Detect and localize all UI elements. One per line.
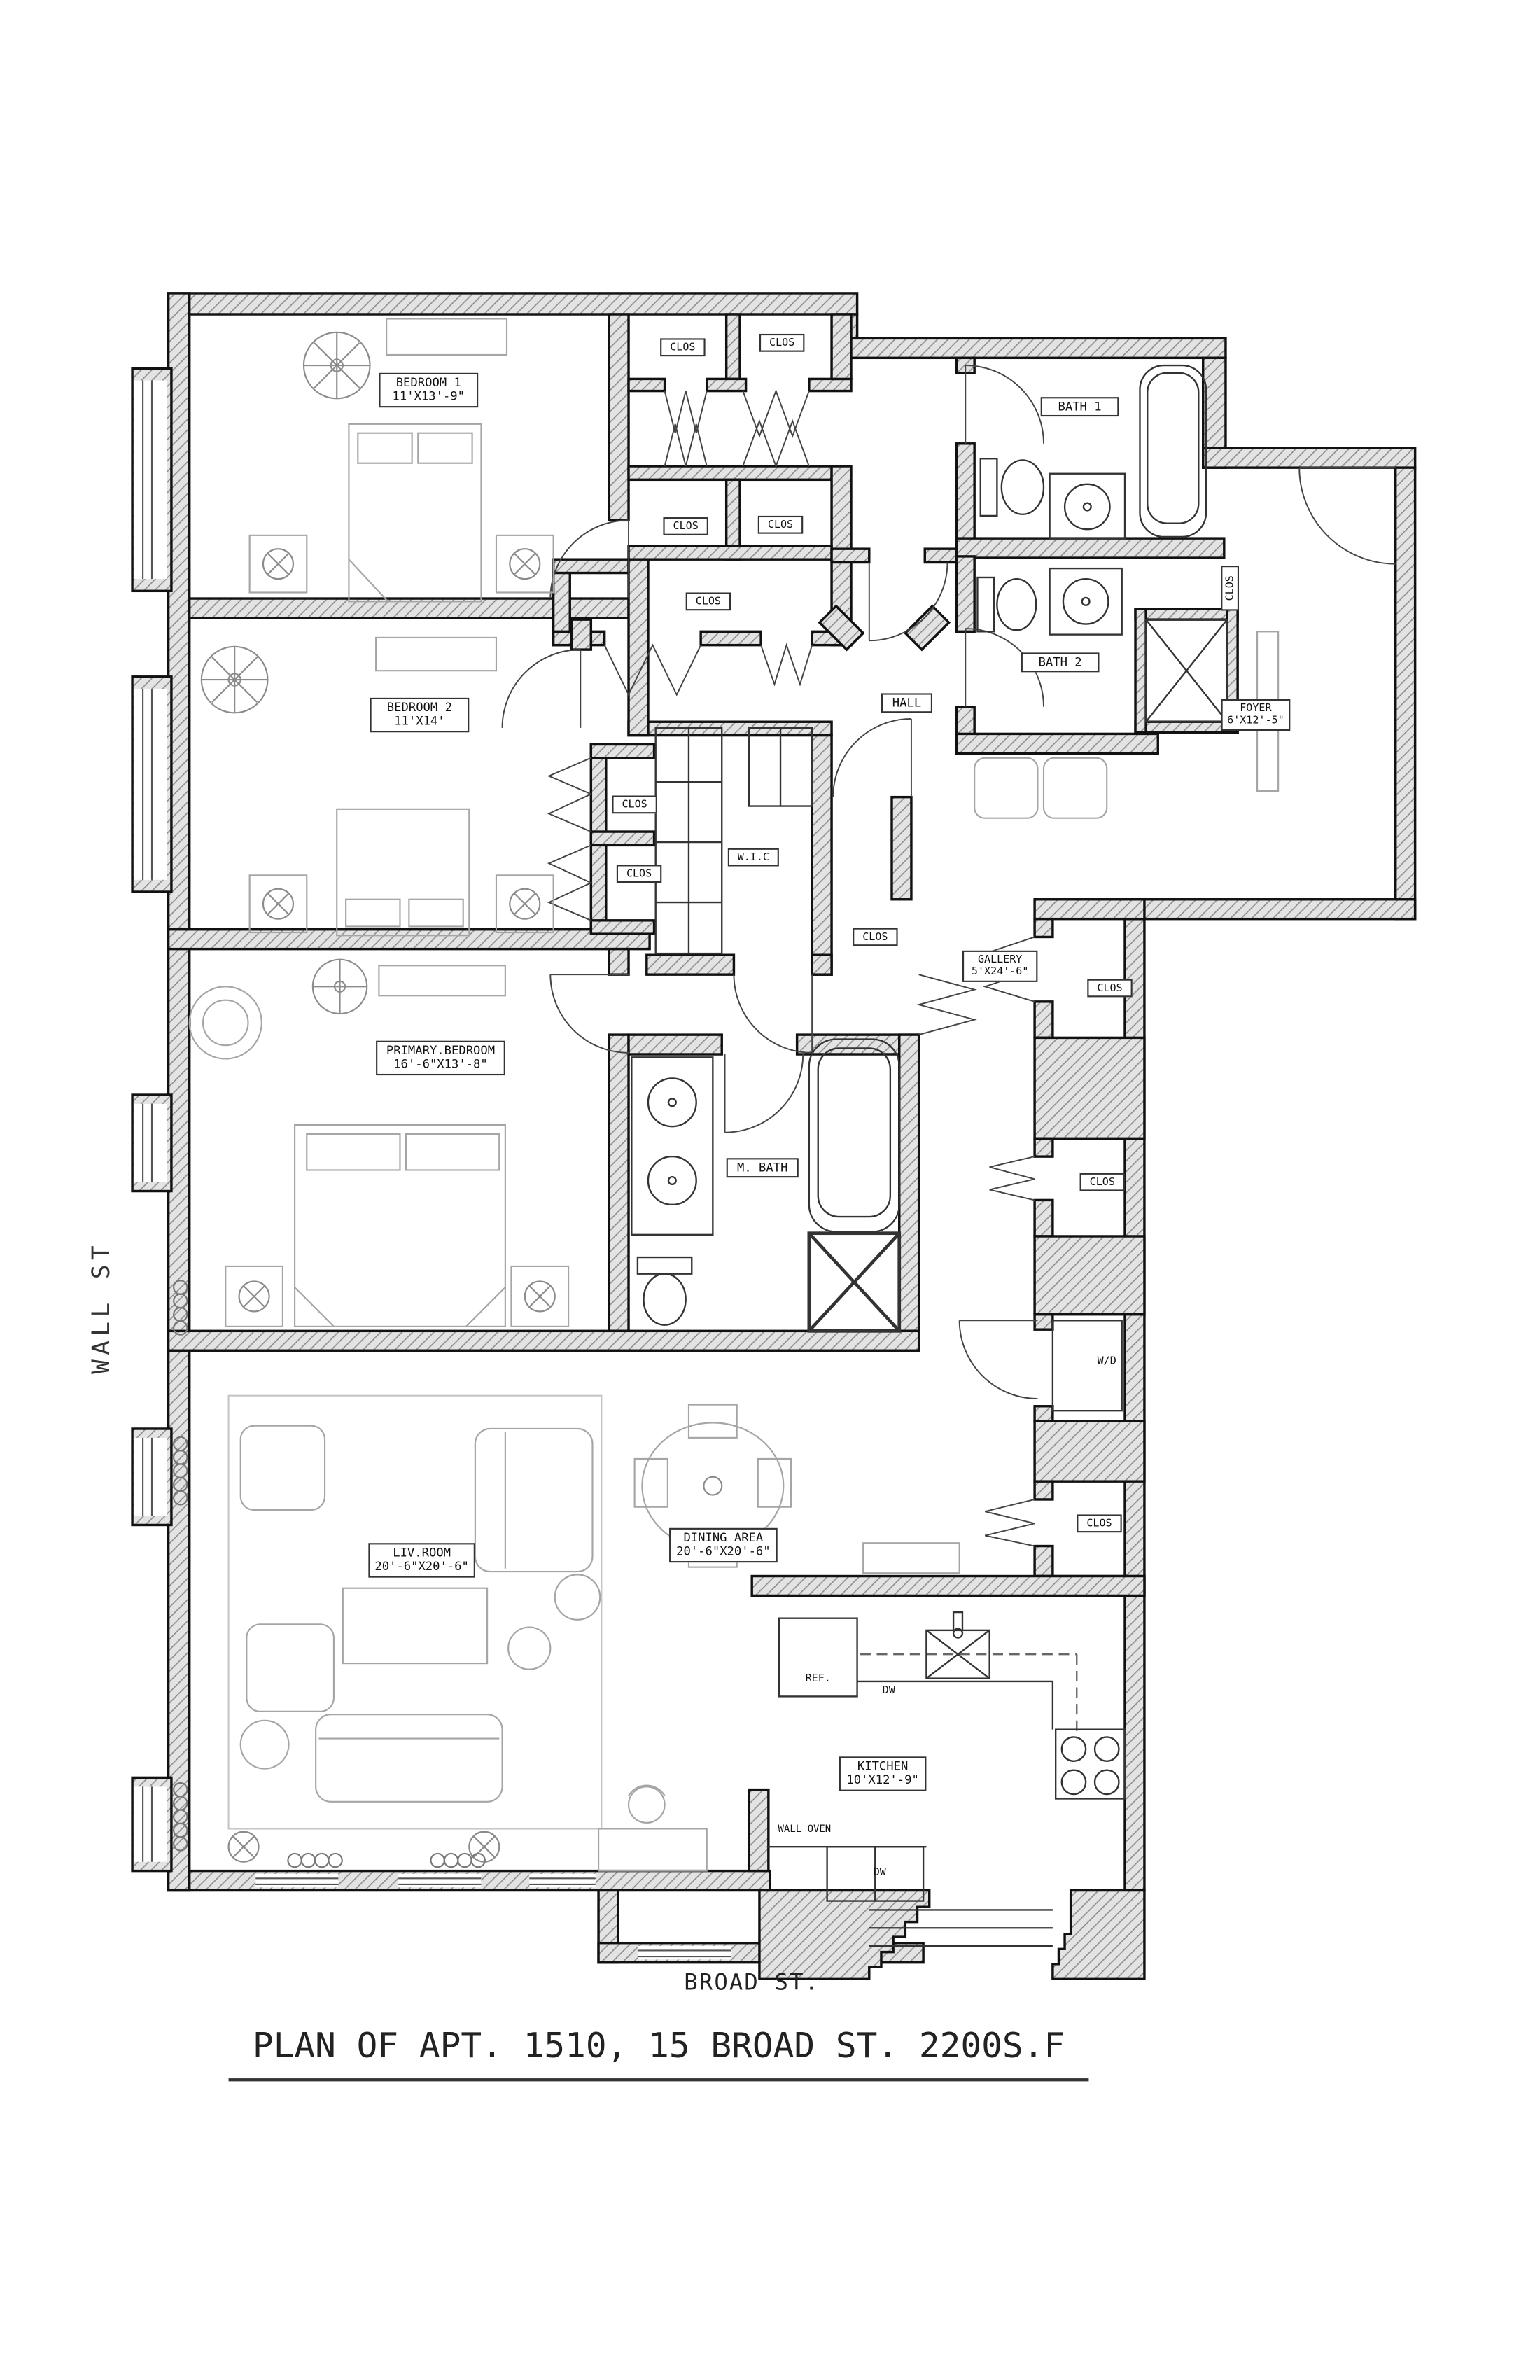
plant-2 [508,1627,550,1669]
dresser-bedroom1 [386,318,507,355]
closet-label-8: CLOS [853,928,897,946]
bed-bedroom1 [349,424,481,602]
stove-icon [1056,1730,1125,1799]
bottom-window-3 [529,1874,596,1887]
bedroom1-name: BEDROOM 1 [382,376,475,390]
dining-area-dims: 20'-6"X20'-6" [672,1545,774,1559]
bottom-window-2 [398,1874,481,1887]
ceiling-fan-primary-icon [313,960,367,1014]
washer-dryer-label: W/D [1091,1355,1123,1368]
closet-label-3: CLOS [663,517,708,535]
bathtub-bath1-icon [1140,365,1206,537]
sofa-living-right [475,1429,593,1571]
dining-area-name: DINING AREA [672,1531,774,1545]
dresser-bedroom2 [376,638,496,671]
kitchen-name: KITCHEN [842,1760,923,1774]
gallery-dims: 5'X24'-6" [965,966,1035,979]
vanity-mbath-icon [631,1057,713,1235]
desk-and-stool [598,1786,707,1871]
hall-label: HALL [881,693,932,713]
ceiling-fan-bedroom1-icon [304,332,370,399]
closet-label-9: CLOS [1087,979,1132,997]
gallery-name: GALLERY [965,953,1035,966]
ceiling-fan-bedroom2-icon [202,647,268,713]
bottom-window-1 [255,1874,338,1887]
bedroom1-dims: 11'X13'-9" [382,390,475,404]
dishwasher-top-label: DW [872,1684,905,1697]
wardrobe-wic-icon [656,728,812,953]
kitchen-dims: 10'X12'-9" [842,1774,923,1788]
foyer-label: FOYER 6'X12'-5" [1221,699,1291,730]
bathtub-mbath-icon [809,1039,899,1232]
sideboard [863,1543,959,1573]
closet-label-2: CLOS [759,334,804,352]
bay-window-primary [134,1104,167,1182]
refrigerator-label: REF. [799,1672,838,1685]
bedroom2-label: BEDROOM 2 11'X14' [370,698,470,732]
bench-passage-1 [974,758,1037,818]
toilet-bath1-icon [981,458,1044,516]
kitchen-label: KITCHEN 10'X12'-9" [839,1756,927,1791]
bay-window-living2 [134,1786,167,1861]
bed-bedroom2 [337,809,469,935]
closet-label-5: CLOS [686,592,731,610]
bedroom1-label: BEDROOM 1 11'X13'-9" [379,373,478,407]
wall-st-label: WALL ST [88,1217,117,1398]
bay-window-bedroom1 [134,381,167,580]
bedroom2-dims: 11'X14' [373,715,466,729]
primary-bedroom-dims: 16'-6"X13'-8" [379,1058,502,1072]
kitchen-sink-icon [926,1612,989,1679]
bench-passage-2 [1044,758,1107,818]
dining-area-label: DINING AREA 20'-6"X20'-6" [669,1528,778,1562]
closet-label-6: CLOS [612,796,657,814]
bay-window-bedroom2 [134,689,167,880]
elevator-shaft-icon [1146,619,1227,722]
bedroom2-name: BEDROOM 2 [373,701,466,715]
living-room-dims: 20'-6"X20'-6" [372,1560,472,1574]
primary-bedroom-name: PRIMARY.BEDROOM [379,1044,502,1058]
closet-label-11: CLOS [1077,1514,1121,1532]
plan-title: PLAN OF APT. 1510, 15 BROAD ST. 2200S.F [229,2027,1089,2082]
sink-bath1-icon [1050,474,1125,538]
foyer-name: FOYER [1224,702,1287,715]
floor-plan: BEDROOM 1 11'X13'-9" BEDROOM 2 11'X14' P… [0,0,1540,2380]
closet-label-10: CLOS [1080,1173,1125,1191]
living-room-name: LIV.ROOM [372,1546,472,1560]
floor-plan-drawing [0,0,1540,2380]
closet-label-4: CLOS [758,516,803,534]
wall-oven-label: WALL OVEN [770,1824,839,1835]
dresser-primary [379,965,505,995]
primary-bedroom-label: PRIMARY.BEDROOM 16'-6"X13'-8" [376,1041,505,1075]
sofa-living-bottom [316,1714,502,1802]
coffee-table [343,1588,487,1663]
gallery-label: GALLERY 5'X24'-6" [962,951,1037,981]
closet-label-foyer: CLOS [1221,566,1239,610]
sink-bath2-icon [1050,568,1122,635]
broad-st-label: BROAD ST. [680,1970,824,1996]
armchair-primary [190,986,262,1058]
area-rug [229,1396,602,1829]
living-room-label: LIV.ROOM 20'-6"X20'-6" [368,1543,475,1577]
armchair-living-2 [246,1624,334,1711]
foyer-dims: 6'X12'-5" [1224,715,1287,727]
porch-window [638,1946,731,1959]
side-table [555,1574,600,1619]
bed-primary [295,1125,505,1326]
m-bath-label: M. BATH [727,1158,799,1178]
doors-layer [503,365,1396,1546]
toilet-mbath-icon [638,1257,692,1325]
bath1-label: BATH 1 [1041,397,1119,417]
bath2-label: BATH 2 [1021,652,1100,673]
closet-label-7: CLOS [617,864,661,883]
armchair-living-1 [241,1426,325,1510]
plant-1 [241,1721,289,1769]
wic-label: W.I.C [728,848,779,867]
walls-layer [132,293,1415,1979]
dishwasher-bottom-label: DW [863,1866,896,1879]
toilet-bath2-icon [977,577,1036,631]
closet-label-1: CLOS [660,338,705,356]
bay-window-living1 [134,1438,167,1516]
duct-shaft-mbath-icon [809,1233,899,1331]
